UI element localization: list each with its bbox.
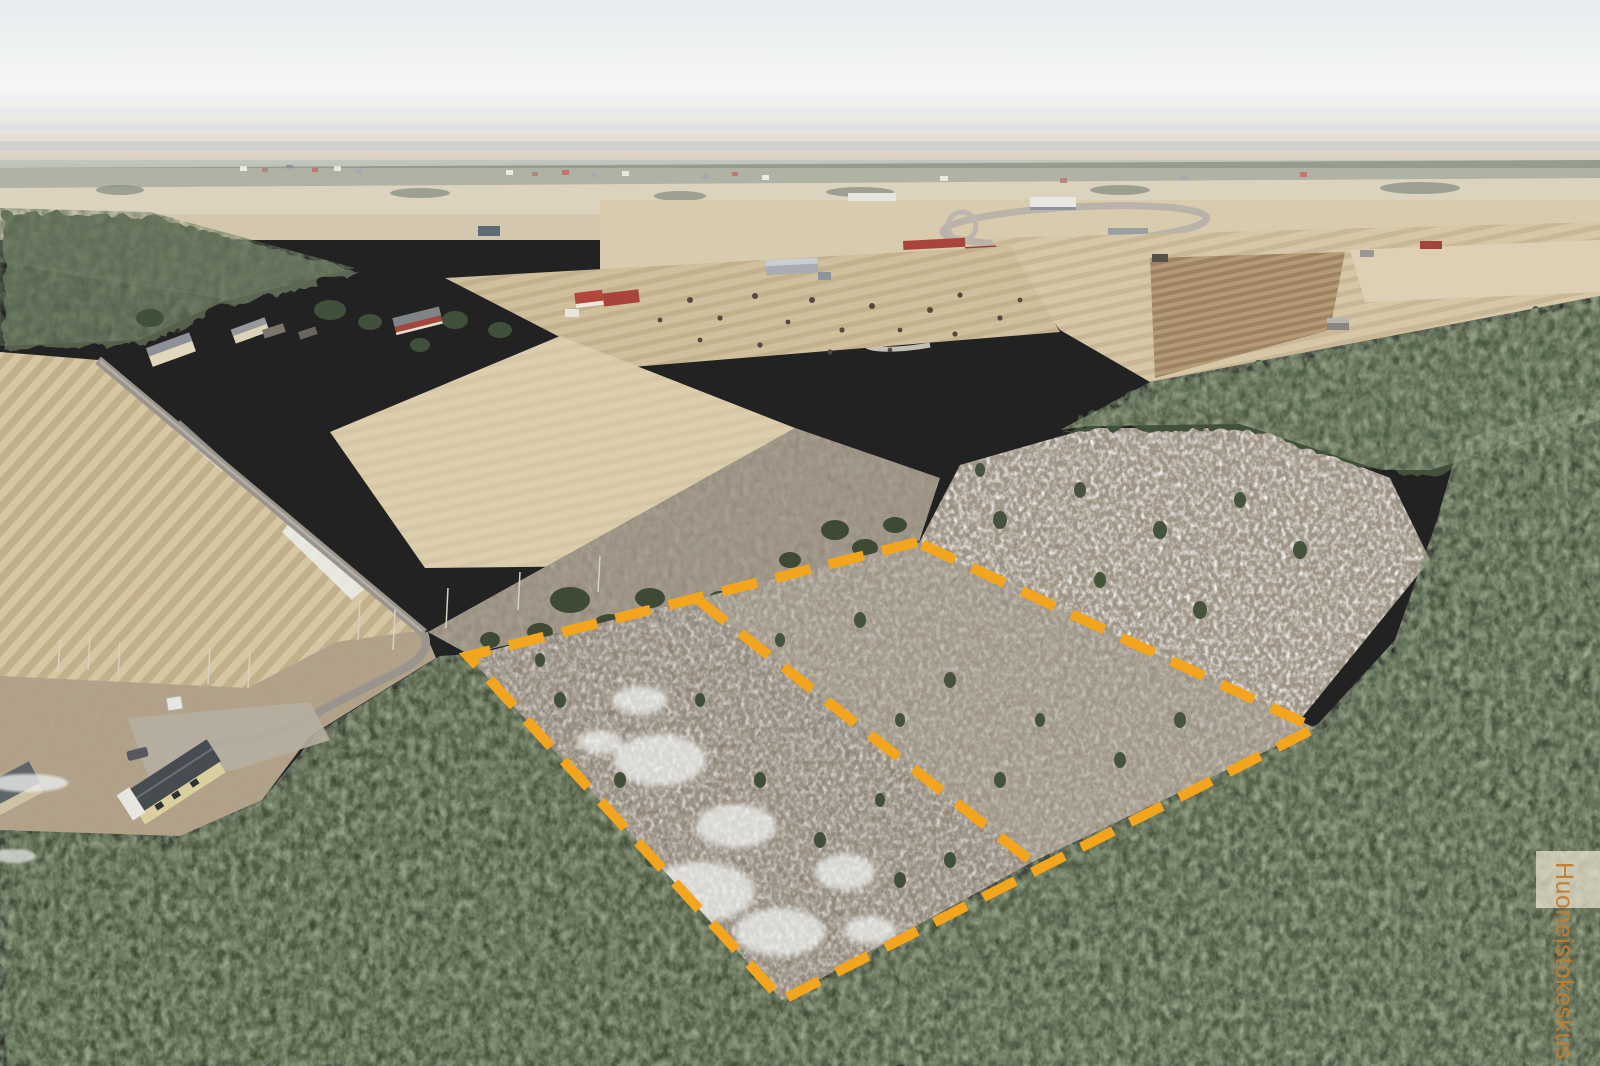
watermark-text: Huoneistokeskus xyxy=(1550,862,1578,1060)
aerial-photo: Huoneistokeskus xyxy=(0,0,1600,1066)
screenshot-root: Huoneistokeskus xyxy=(0,0,1600,1066)
distant-grey-house xyxy=(478,226,500,236)
utility-trailer xyxy=(166,696,183,711)
sky xyxy=(0,0,1600,100)
red-house xyxy=(392,306,443,335)
red-barn xyxy=(1420,241,1442,249)
